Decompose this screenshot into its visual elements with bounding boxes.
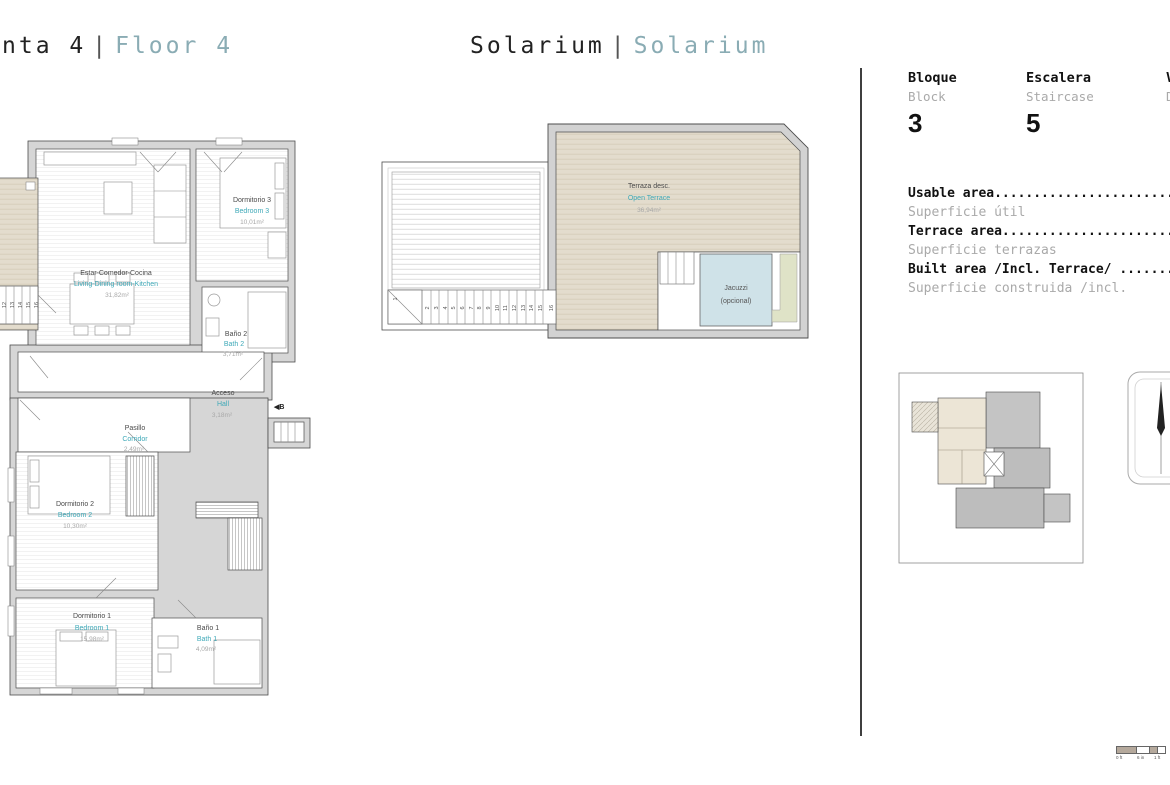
title-solarium-en: Solarium bbox=[634, 33, 769, 59]
stair-number: 2 bbox=[425, 306, 431, 309]
label-terrace-en: Open Terrace bbox=[628, 195, 670, 202]
scale-label-1: 1 ft bbox=[1154, 755, 1160, 760]
label-jacuzzi-note: (opcional) bbox=[721, 298, 752, 305]
solarium-plan-drawing: Terraza desc. Open Terrace 36,94m² Jacuz… bbox=[375, 115, 815, 355]
stair-number: 8 bbox=[477, 306, 483, 309]
staircase-value: 5 bbox=[1026, 108, 1094, 139]
entrance-marker: ◀B bbox=[273, 404, 284, 411]
room-corridor bbox=[18, 398, 190, 452]
built-area-line-es: Superficie construida /incl. bbox=[908, 279, 1170, 298]
room-hall bbox=[18, 352, 264, 392]
sink-2 bbox=[208, 294, 220, 306]
info-block: Bloque Block 3 bbox=[908, 70, 957, 139]
label-bath1-es: Baño 1 bbox=[197, 625, 219, 632]
title-floor-separator: | bbox=[86, 33, 115, 59]
staircase-label-es: Escalera bbox=[1026, 70, 1094, 86]
stair-number: 13 bbox=[521, 305, 527, 311]
label-bedroom3-area: 10,01m² bbox=[240, 219, 265, 226]
dwelling-label-es: Vivienda bbox=[1166, 70, 1170, 86]
label-bedroom2-en: Bedroom 2 bbox=[58, 512, 92, 519]
label-bedroom1-es: Dormitorio 1 bbox=[73, 613, 111, 620]
stair-number: 5 bbox=[451, 306, 457, 309]
label-bath2-en: Bath 2 bbox=[224, 341, 244, 348]
stair-number: 14 bbox=[18, 302, 24, 308]
stair-number: 7 bbox=[469, 306, 475, 309]
stair-number: 1 bbox=[393, 297, 399, 300]
keyplan-unit-gray bbox=[1044, 494, 1070, 522]
shower-1 bbox=[214, 640, 260, 684]
scale-segment bbox=[1117, 747, 1136, 753]
label-bedroom2-es: Dormitorio 2 bbox=[56, 501, 94, 508]
label-bedroom1-en: Bedroom 1 bbox=[75, 625, 109, 632]
info-staircase: Escalera Staircase 5 bbox=[1026, 70, 1094, 139]
open-terrace: Terraza desc. Open Terrace 36,94m² Jacuz… bbox=[548, 124, 808, 338]
block-label-en: Block bbox=[908, 89, 957, 104]
stair-number: 16 bbox=[549, 305, 555, 311]
label-corridor-es: Pasillo bbox=[125, 425, 146, 432]
toilet-1 bbox=[158, 654, 171, 672]
stair-number: 3 bbox=[434, 306, 440, 309]
scale-bar-segments bbox=[1116, 746, 1166, 754]
usable-area-line: Usable area......................... bbox=[908, 184, 1170, 203]
block-value: 3 bbox=[908, 108, 957, 139]
label-bath1-area: 4,09m² bbox=[196, 646, 217, 653]
north-arrow bbox=[1126, 370, 1170, 492]
vertical-divider bbox=[860, 68, 862, 736]
shower-2 bbox=[248, 292, 286, 348]
page-title-solarium: Solarium|Solarium bbox=[470, 33, 768, 59]
label-bedroom2-area: 10,30m² bbox=[63, 523, 88, 530]
label-living-en: Living-Dining room-Kitchen bbox=[74, 281, 158, 288]
stair-number: 13 bbox=[10, 302, 16, 308]
label-bath2-es: Baño 2 bbox=[225, 331, 247, 338]
solarium-staircase: 1 2 3 4 5 6 7 8 9 10 11 12 13 14 15 16 bbox=[388, 290, 556, 324]
label-corridor-en: Corridor bbox=[122, 436, 148, 443]
label-jacuzzi: Jacuzzi bbox=[724, 285, 748, 292]
label-hall-en: Hall bbox=[217, 401, 230, 408]
label-living-es: Estar-Comedor-Cocina bbox=[80, 270, 152, 277]
staircase-label-en: Staircase bbox=[1026, 89, 1094, 104]
stair-number: 12 bbox=[512, 305, 518, 311]
label-terrace-area: 36,94m² bbox=[637, 207, 662, 214]
keyplan-terrace bbox=[912, 402, 938, 432]
title-solarium-es: Solarium bbox=[470, 33, 605, 59]
info-dwelling: Vivienda Dwelling bbox=[1166, 70, 1170, 108]
stair-number: 16 bbox=[34, 302, 40, 308]
built-area-line: Built area /Incl. Terrace/ ......... bbox=[908, 260, 1170, 279]
label-bath1-en: Bath 1 bbox=[197, 636, 217, 643]
block-label-es: Bloque bbox=[908, 70, 957, 86]
label-terrace-es: Terraza desc. bbox=[628, 183, 670, 190]
key-plan bbox=[898, 372, 1084, 564]
scale-label-0: 0 ft bbox=[1116, 755, 1122, 760]
sofa bbox=[154, 165, 186, 243]
scale-bar: 0 ft 6 in 1 ft bbox=[1116, 746, 1166, 762]
stair-number: 11 bbox=[503, 305, 509, 311]
keyplan-unit-gray bbox=[986, 392, 1040, 448]
scale-label-mid: 6 in bbox=[1137, 755, 1144, 760]
side-terrace: 12 13 14 15 16 bbox=[0, 178, 40, 330]
terrace-area-line: Terrace area........................ bbox=[908, 222, 1170, 241]
toilet-2 bbox=[206, 318, 219, 336]
stair-number: 15 bbox=[26, 302, 32, 308]
floor-plan-drawing: 12 13 14 15 16 bbox=[0, 128, 330, 700]
stair-number: 9 bbox=[486, 306, 492, 309]
keyplan-unit-gray bbox=[956, 488, 1044, 528]
title-solarium-separator: | bbox=[605, 33, 634, 59]
stair-number: 10 bbox=[495, 305, 501, 311]
kitchen-island bbox=[104, 182, 132, 214]
label-bedroom3-es: Dormitorio 3 bbox=[233, 197, 271, 204]
label-living-area: 31,82m² bbox=[105, 292, 130, 299]
area-summary: Usable area......................... Sup… bbox=[908, 184, 1170, 298]
scale-segment bbox=[1136, 747, 1150, 753]
stair-number: 12 bbox=[2, 302, 8, 308]
label-bedroom1-area: 15,98m² bbox=[80, 636, 105, 643]
terrace-area-line-es: Superficie terrazas bbox=[908, 241, 1170, 260]
stair-number: 4 bbox=[443, 306, 449, 309]
title-floor-es: nta 4 bbox=[2, 33, 86, 59]
sink-1 bbox=[158, 636, 178, 648]
title-floor-en: Floor 4 bbox=[115, 33, 233, 59]
label-bedroom3-en: Bedroom 3 bbox=[235, 208, 269, 215]
stair-number: 15 bbox=[538, 305, 544, 311]
kitchen-counter bbox=[44, 152, 136, 165]
dining-table bbox=[70, 284, 134, 324]
label-hall-es: Acceso bbox=[212, 390, 235, 397]
stair-number: 14 bbox=[529, 305, 535, 311]
scale-segment bbox=[1157, 747, 1165, 753]
stair-number: 6 bbox=[460, 306, 466, 309]
scale-labels: 0 ft 6 in 1 ft bbox=[1116, 754, 1166, 762]
deck-steps bbox=[660, 252, 694, 284]
label-hall-area: 3,18m² bbox=[212, 412, 233, 419]
scale-segment bbox=[1150, 747, 1158, 753]
label-bath2-area: 3,71m² bbox=[223, 351, 244, 358]
usable-area-line-es: Superficie útil bbox=[908, 203, 1170, 222]
label-corridor-area: 2,49m² bbox=[124, 446, 145, 453]
dwelling-label-en: Dwelling bbox=[1166, 89, 1170, 104]
page-title-floor: nta 4|Floor 4 bbox=[2, 33, 233, 59]
brochure-page: nta 4|Floor 4 Solarium|Solarium bbox=[0, 0, 1170, 785]
